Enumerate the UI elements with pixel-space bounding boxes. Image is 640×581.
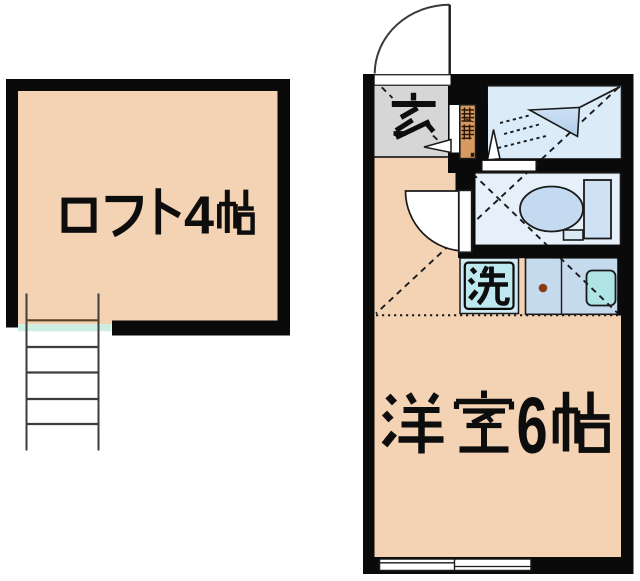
svg-text:6: 6 (517, 380, 548, 470)
svg-text:4: 4 (184, 186, 214, 246)
